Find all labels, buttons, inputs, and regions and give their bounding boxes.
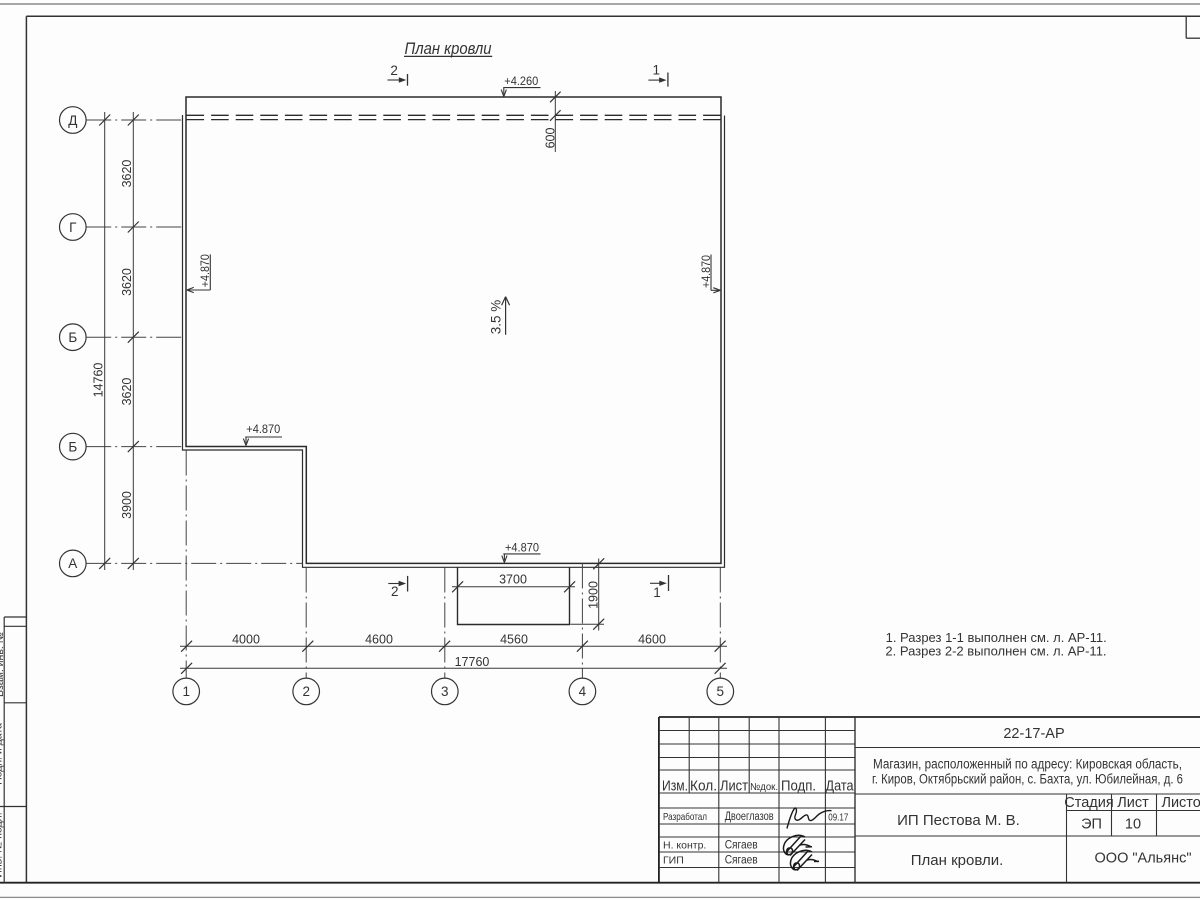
svg-text:Лист: Лист: [1117, 795, 1149, 811]
svg-text:2: 2: [391, 584, 399, 599]
svg-text:№док.: №док.: [750, 782, 778, 793]
svg-text:2. Разрез 2-2 выполнен см. л.: 2. Разрез 2-2 выполнен см. л. АР-11.: [885, 644, 1106, 659]
svg-text:Изм.: Изм.: [662, 778, 688, 795]
svg-text:3: 3: [441, 684, 449, 699]
svg-text:09.17: 09.17: [828, 812, 848, 824]
svg-text:4: 4: [579, 684, 587, 699]
svg-text:План кровли: План кровли: [405, 40, 492, 58]
svg-text:Подп.: Подп.: [781, 778, 816, 795]
svg-text:+4.870: +4.870: [246, 422, 280, 436]
svg-text:Магазин, расположенный по адре: Магазин, расположенный по адресу: Кировс…: [873, 757, 1182, 772]
svg-text:ИП Пестова М. В.: ИП Пестова М. В.: [897, 812, 1020, 829]
svg-text:Д: Д: [68, 113, 77, 128]
svg-text:Кол.: Кол.: [690, 778, 717, 795]
svg-text:Листов: Листов: [1161, 795, 1200, 811]
svg-text:4000: 4000: [232, 633, 260, 647]
svg-text:3900: 3900: [120, 491, 134, 519]
svg-text:Взам. инв. №: Взам. инв. №: [0, 632, 6, 697]
svg-text:22-17-АР: 22-17-АР: [1003, 726, 1064, 742]
svg-text:1900: 1900: [587, 581, 601, 609]
svg-text:600: 600: [543, 128, 557, 149]
svg-text:3620: 3620: [120, 268, 134, 296]
svg-text:Сягаев: Сягаев: [725, 855, 758, 867]
svg-text:Н. контр.: Н. контр.: [663, 840, 706, 852]
svg-text:2: 2: [390, 63, 398, 78]
svg-text:17760: 17760: [455, 655, 490, 669]
svg-text:14760: 14760: [92, 363, 106, 398]
svg-text:г. Киров, Октябрьский район, с: г. Киров, Октябрьский район, с. Бахта, у…: [872, 772, 1183, 787]
svg-text:3620: 3620: [120, 378, 134, 406]
svg-text:4560: 4560: [500, 633, 528, 647]
svg-text:План кровли.: План кровли.: [911, 852, 1004, 869]
svg-text:Лист: Лист: [720, 778, 748, 795]
svg-text:1: 1: [182, 684, 190, 699]
svg-text:А: А: [68, 556, 77, 571]
svg-text:5: 5: [717, 684, 725, 699]
svg-text:+4.260: +4.260: [504, 74, 538, 88]
svg-text:ГИП: ГИП: [663, 855, 684, 867]
svg-text:3.5 %: 3.5 %: [488, 300, 503, 335]
svg-text:4600: 4600: [638, 633, 666, 647]
svg-text:Б: Б: [68, 439, 77, 454]
svg-text:4600: 4600: [365, 633, 393, 647]
svg-text:Двоеглазов: Двоеглазов: [725, 811, 774, 823]
svg-text:3620: 3620: [120, 160, 134, 188]
svg-text:Дата: Дата: [826, 778, 855, 795]
svg-text:10: 10: [1125, 817, 1141, 833]
svg-text:+4.870: +4.870: [505, 541, 539, 555]
svg-text:Стадия: Стадия: [1064, 795, 1113, 811]
svg-text:3700: 3700: [499, 572, 527, 586]
svg-text:1: 1: [653, 63, 661, 78]
svg-text:ЭП: ЭП: [1081, 817, 1102, 833]
svg-text:2: 2: [302, 684, 310, 699]
svg-text:Б: Б: [68, 330, 77, 345]
svg-text:Подп. и дата: Подп. и дата: [0, 723, 5, 785]
svg-text:Инв. № подл.: Инв. № подл.: [0, 812, 5, 877]
svg-text:Разработал: Разработал: [663, 811, 707, 823]
svg-text:1: 1: [653, 585, 661, 600]
svg-text:ООО "Альянс": ООО "Альянс": [1095, 851, 1192, 867]
svg-text:Сягаев: Сягаев: [725, 840, 758, 852]
svg-text:Г: Г: [69, 220, 77, 235]
